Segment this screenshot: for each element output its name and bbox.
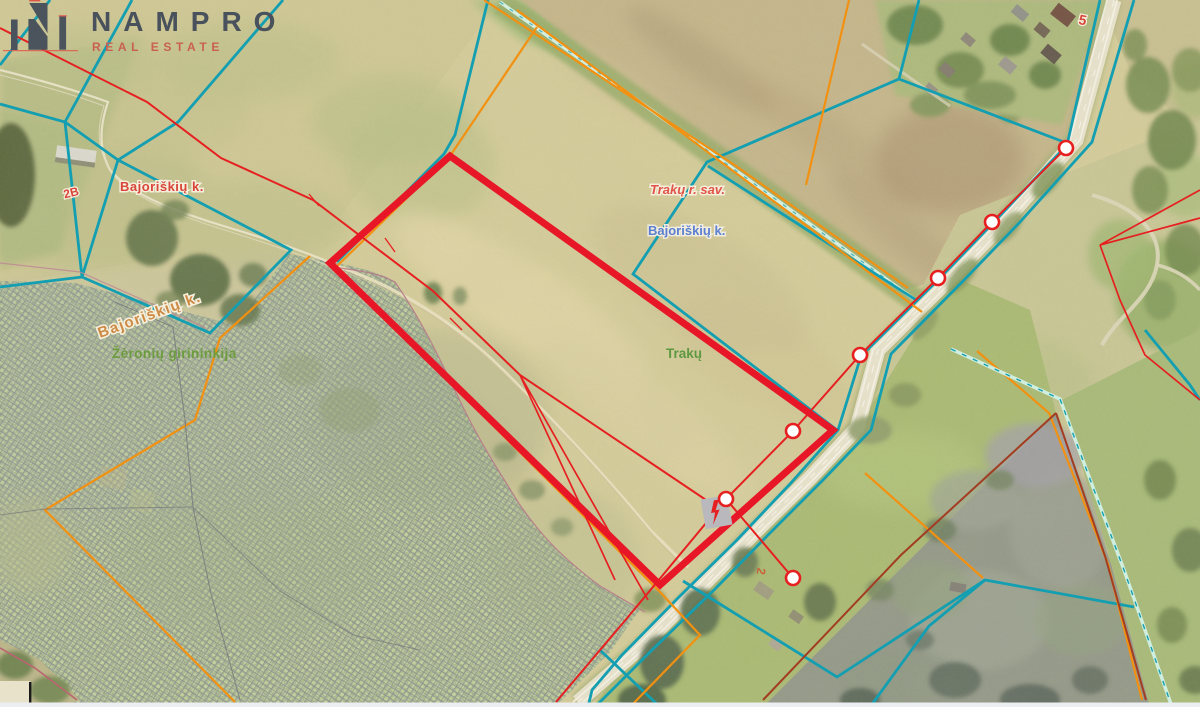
svg-text:Žėronių girininkija: Žėronių girininkija	[112, 346, 237, 361]
svg-text:REAL ESTATE: REAL ESTATE	[92, 40, 224, 54]
svg-text:Trakų: Trakų	[666, 346, 702, 361]
svg-text:Trakų r. sav.: Trakų r. sav.	[650, 182, 725, 197]
svg-text:Bajoriškių k.: Bajoriškių k.	[648, 223, 725, 238]
svg-text:NAMPRO: NAMPRO	[91, 6, 287, 37]
svg-text:Bajoriškių k.: Bajoriškių k.	[120, 179, 204, 194]
